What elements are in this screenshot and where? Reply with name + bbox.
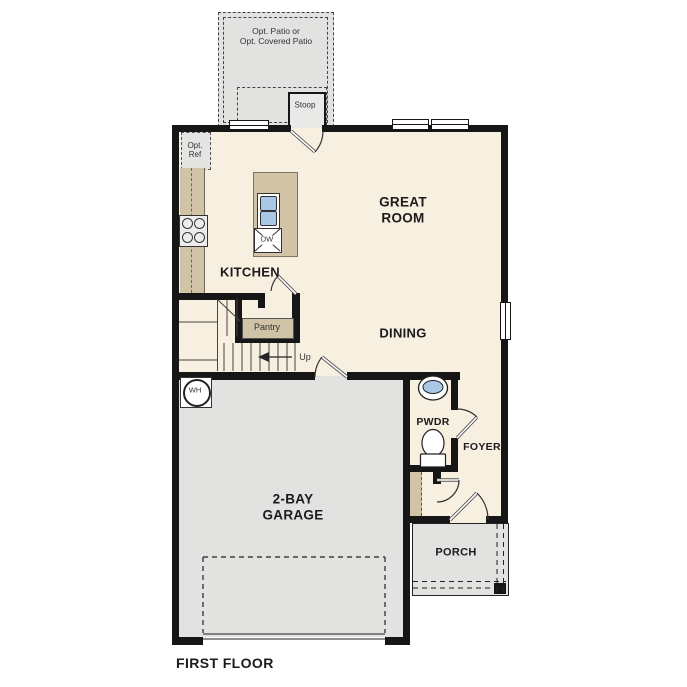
wall-foyer-bottom-left <box>403 516 450 523</box>
first-floor-title: FIRST FLOOR <box>176 655 274 671</box>
wall-kitchen-stub <box>258 293 265 308</box>
window-pane-line <box>230 125 268 126</box>
stove <box>179 215 208 247</box>
wall-garage-bottom-right <box>385 637 410 645</box>
sink-basin <box>260 196 277 211</box>
stoop-area <box>288 92 326 132</box>
window-pane-line <box>432 124 468 125</box>
dishwasher <box>254 228 282 253</box>
floor-plan: Opt. Patio or Opt. Covered Patio Stoop O… <box>0 0 687 687</box>
closet-shelf <box>410 472 422 516</box>
wall-pwdr-bottom <box>403 465 458 472</box>
water-heater-circle <box>183 379 211 407</box>
pantry-shelf <box>242 318 294 339</box>
dining-window <box>500 302 511 340</box>
wall-closet-jamb <box>433 472 441 484</box>
main-floor-area <box>176 128 505 380</box>
burner <box>182 218 193 229</box>
great-room-window-2 <box>431 119 469 130</box>
window-pane-line <box>505 303 506 339</box>
wall-garage-right <box>403 372 410 645</box>
wall-pantry-left <box>235 293 242 342</box>
great-room-window-1 <box>392 119 429 130</box>
sink-basin <box>260 211 277 226</box>
burner <box>194 218 205 229</box>
wall-left <box>172 125 179 645</box>
porch-column <box>494 583 506 594</box>
kitchen-sink <box>257 193 280 229</box>
wall-pwdr-right-upper <box>451 372 458 410</box>
wall-garage-bottom-left <box>172 637 203 645</box>
window-pane-line <box>393 124 428 125</box>
wall-kitchen-bottom <box>172 293 265 300</box>
burner <box>182 232 193 243</box>
wall-foyer-bottom-right <box>486 516 508 523</box>
garage-floor-area <box>176 376 410 637</box>
optional-refrigerator <box>181 132 211 170</box>
burner <box>194 232 205 243</box>
kitchen-window <box>229 120 269 130</box>
